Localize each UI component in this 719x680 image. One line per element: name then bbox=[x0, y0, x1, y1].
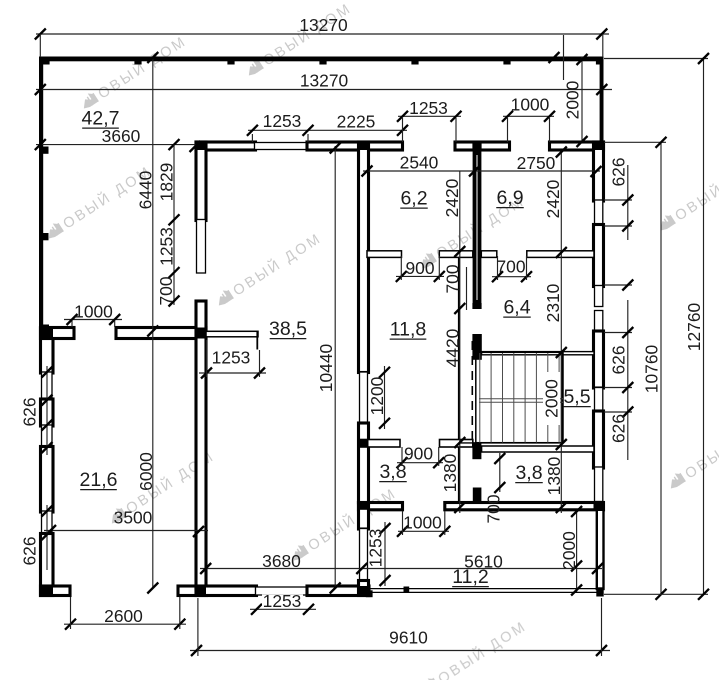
svg-text:6,9: 6,9 bbox=[496, 187, 523, 209]
svg-text:13270: 13270 bbox=[300, 71, 348, 91]
svg-text:42,7: 42,7 bbox=[82, 107, 120, 129]
svg-text:38,5: 38,5 bbox=[269, 318, 307, 340]
svg-text:1000: 1000 bbox=[403, 513, 442, 533]
svg-text:1829: 1829 bbox=[157, 163, 177, 202]
svg-text:1000: 1000 bbox=[74, 302, 113, 322]
svg-text:3,8: 3,8 bbox=[515, 462, 542, 484]
svg-text:12760: 12760 bbox=[684, 303, 704, 351]
svg-text:6000: 6000 bbox=[136, 452, 156, 491]
svg-text:700: 700 bbox=[156, 276, 176, 305]
svg-text:1253: 1253 bbox=[212, 348, 251, 368]
svg-text:2600: 2600 bbox=[104, 606, 143, 626]
svg-text:2000: 2000 bbox=[542, 379, 562, 418]
svg-text:3680: 3680 bbox=[262, 551, 301, 571]
svg-text:21,6: 21,6 bbox=[80, 469, 118, 491]
svg-text:3500: 3500 bbox=[114, 508, 153, 528]
svg-text:700: 700 bbox=[496, 257, 525, 277]
svg-text:2540: 2540 bbox=[400, 153, 439, 173]
svg-text:2000: 2000 bbox=[559, 531, 579, 570]
svg-text:9610: 9610 bbox=[389, 628, 428, 648]
svg-text:6,2: 6,2 bbox=[400, 187, 427, 209]
svg-text:2750: 2750 bbox=[517, 153, 556, 173]
svg-text:2000: 2000 bbox=[563, 81, 583, 120]
svg-text:1000: 1000 bbox=[511, 95, 550, 115]
svg-text:626: 626 bbox=[20, 397, 40, 426]
svg-text:10760: 10760 bbox=[642, 345, 662, 393]
svg-text:1253: 1253 bbox=[263, 111, 302, 131]
svg-text:2420: 2420 bbox=[543, 180, 563, 219]
svg-text:5,5: 5,5 bbox=[563, 386, 590, 408]
svg-text:2310: 2310 bbox=[543, 284, 563, 323]
svg-text:11,8: 11,8 bbox=[390, 318, 427, 340]
svg-text:4420: 4420 bbox=[443, 329, 463, 368]
svg-text:1200: 1200 bbox=[367, 377, 387, 416]
svg-text:3,8: 3,8 bbox=[379, 461, 406, 483]
svg-text:1253: 1253 bbox=[366, 529, 386, 568]
svg-text:2225: 2225 bbox=[337, 112, 376, 132]
svg-text:6,4: 6,4 bbox=[503, 296, 530, 318]
svg-text:700: 700 bbox=[484, 494, 504, 523]
svg-text:700: 700 bbox=[443, 264, 463, 293]
svg-text:626: 626 bbox=[609, 414, 629, 443]
svg-text:626: 626 bbox=[609, 345, 629, 374]
svg-text:13270: 13270 bbox=[299, 15, 347, 35]
svg-text:1380: 1380 bbox=[544, 457, 564, 496]
svg-text:900: 900 bbox=[405, 258, 434, 278]
svg-text:1253: 1253 bbox=[157, 227, 177, 266]
svg-text:10440: 10440 bbox=[316, 344, 336, 392]
svg-text:626: 626 bbox=[609, 157, 629, 186]
svg-text:626: 626 bbox=[20, 536, 40, 565]
svg-text:1253: 1253 bbox=[263, 591, 302, 611]
svg-text:6440: 6440 bbox=[136, 171, 156, 210]
svg-text:1253: 1253 bbox=[409, 98, 448, 118]
svg-text:2420: 2420 bbox=[442, 179, 462, 218]
svg-text:900: 900 bbox=[404, 444, 433, 464]
svg-text:11,2: 11,2 bbox=[452, 566, 489, 588]
